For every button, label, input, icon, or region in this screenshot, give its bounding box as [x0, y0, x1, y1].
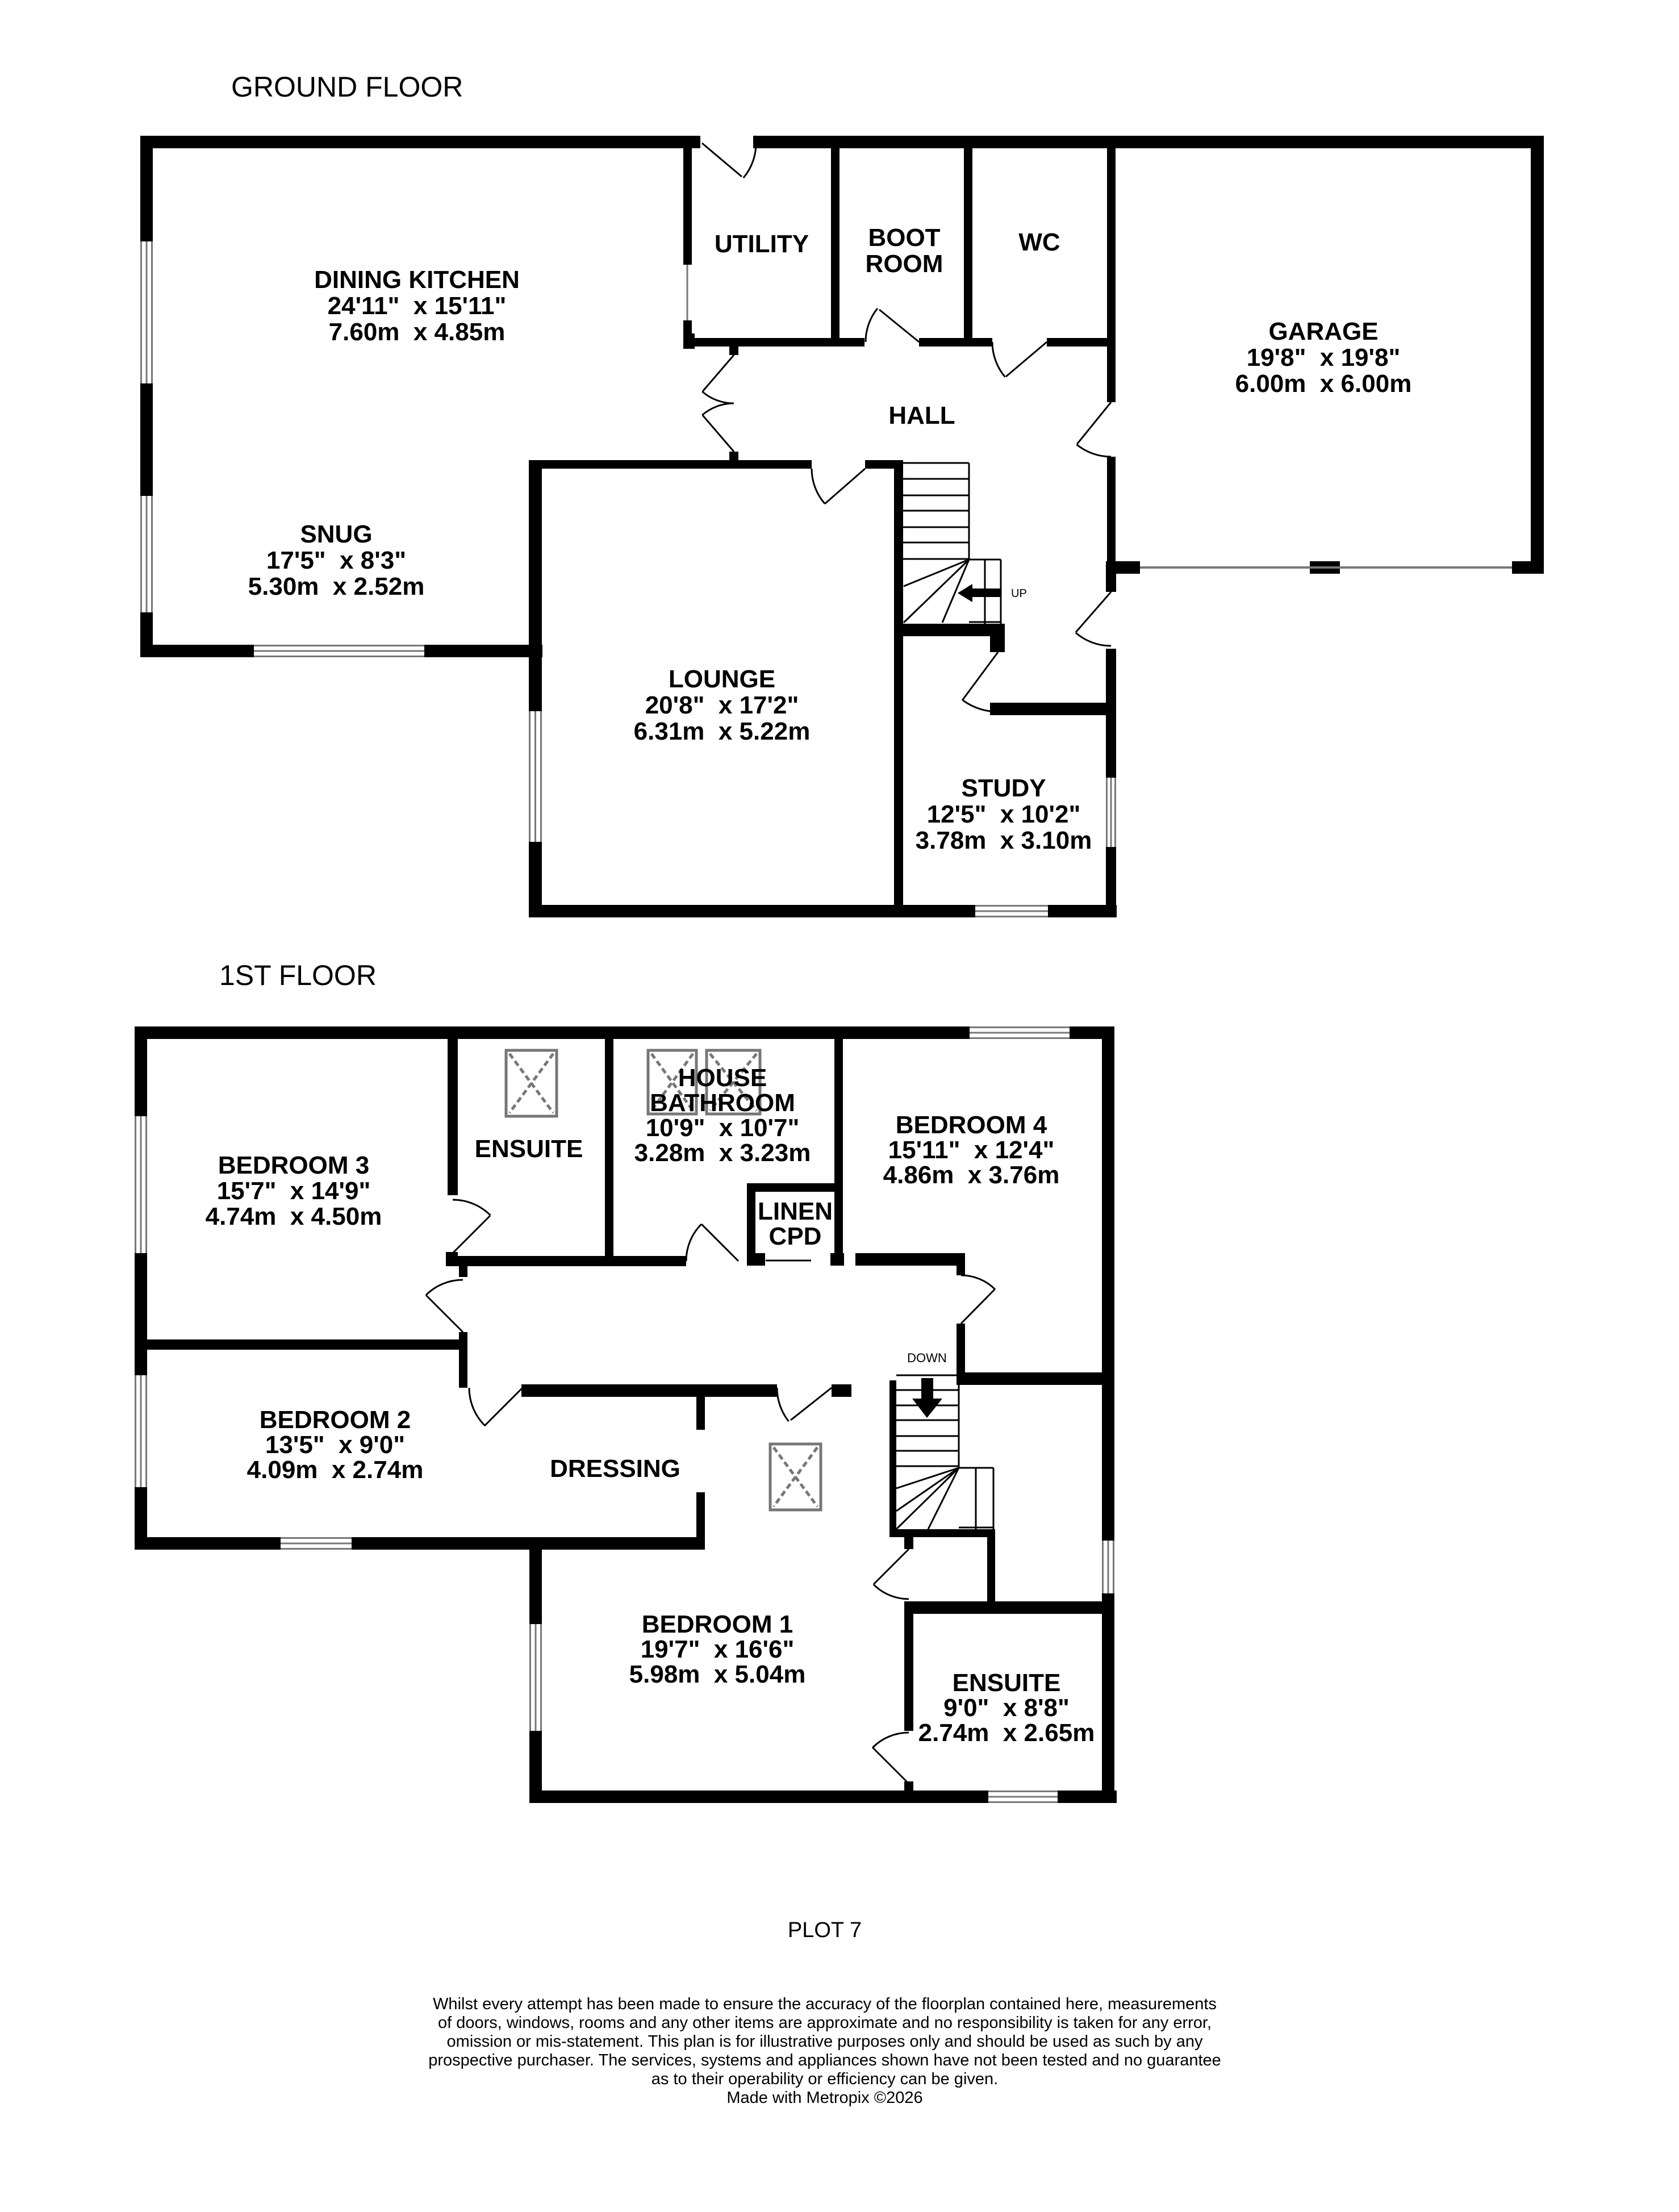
svg-text:of doors, windows, rooms and a: of doors, windows, rooms and any other i… [438, 2014, 1212, 2032]
svg-text:HOUSE: HOUSE [678, 1064, 767, 1092]
svg-text:ENSUITE: ENSUITE [953, 1669, 1061, 1697]
svg-text:24'11" x 15'11": 24'11" x 15'11" [328, 292, 507, 320]
svg-text:3.78m x 3.10m: 3.78m x 3.10m [916, 827, 1092, 854]
svg-text:LINEN: LINEN [758, 1197, 833, 1225]
svg-text:DOWN: DOWN [907, 1351, 947, 1365]
svg-text:9'0" x 8'8": 9'0" x 8'8" [943, 1694, 1070, 1722]
svg-text:BOOT: BOOT [868, 224, 940, 252]
svg-text:BEDROOM 4: BEDROOM 4 [896, 1111, 1047, 1139]
svg-text:5.98m x 5.04m: 5.98m x 5.04m [629, 1660, 806, 1688]
svg-text:7.60m x 4.85m: 7.60m x 4.85m [329, 318, 506, 346]
svg-text:4.74m x 4.50m: 4.74m x 4.50m [206, 1203, 382, 1230]
svg-text:12'5" x 10'2": 12'5" x 10'2" [927, 800, 1081, 828]
svg-text:ROOM: ROOM [866, 250, 943, 278]
svg-text:Made with Metropix ©2026: Made with Metropix ©2026 [726, 2089, 922, 2107]
svg-text:ENSUITE: ENSUITE [475, 1135, 583, 1163]
svg-text:15'7" x 14'9": 15'7" x 14'9" [217, 1177, 371, 1205]
svg-text:13'5" x 9'0": 13'5" x 9'0" [265, 1431, 405, 1459]
svg-text:BEDROOM 2: BEDROOM 2 [260, 1406, 411, 1434]
svg-text:HALL: HALL [888, 402, 955, 429]
svg-text:STUDY: STUDY [961, 774, 1046, 802]
svg-text:UP: UP [1011, 587, 1027, 600]
svg-text:5.30m x 2.52m: 5.30m x 2.52m [248, 573, 425, 600]
svg-text:6.31m x 5.22m: 6.31m x 5.22m [634, 717, 811, 745]
svg-text:PLOT 7: PLOT 7 [788, 1918, 862, 1942]
svg-text:4.86m x 3.76m: 4.86m x 3.76m [883, 1161, 1060, 1189]
svg-text:15'11" x 12'4": 15'11" x 12'4" [888, 1136, 1055, 1164]
svg-text:LOUNGE: LOUNGE [669, 665, 775, 693]
svg-text:prospective purchaser. The ser: prospective purchaser. The services, sys… [428, 2051, 1221, 2069]
svg-text:19'8" x 19'8": 19'8" x 19'8" [1247, 344, 1401, 372]
svg-text:19'7" x 16'6": 19'7" x 16'6" [641, 1635, 795, 1663]
svg-text:WC: WC [1018, 228, 1060, 256]
svg-text:CPD: CPD [769, 1222, 822, 1250]
svg-text:BATHROOM: BATHROOM [650, 1089, 795, 1117]
svg-text:omission or mis-statement. Thi: omission or mis-statement. This plan is … [447, 2032, 1203, 2051]
svg-text:Whilst every attempt has been: Whilst every attempt has been made to en… [433, 1995, 1217, 2013]
svg-text:17'5" x 8'3": 17'5" x 8'3" [266, 546, 406, 574]
svg-text:2.74m x 2.65m: 2.74m x 2.65m [918, 1719, 1095, 1747]
svg-text:DINING KITCHEN: DINING KITCHEN [314, 266, 520, 294]
svg-text:20'8" x 17'2": 20'8" x 17'2" [645, 691, 799, 719]
svg-text:1ST FLOOR: 1ST FLOOR [219, 959, 377, 991]
svg-text:GARAGE: GARAGE [1268, 318, 1378, 345]
svg-text:GROUND FLOOR: GROUND FLOOR [231, 71, 463, 103]
svg-text:as to their operability or eff: as to their operability or efficiency ca… [651, 2070, 998, 2088]
svg-text:10'9" x 10'7": 10'9" x 10'7" [646, 1114, 800, 1142]
svg-text:3.28m x 3.23m: 3.28m x 3.23m [634, 1139, 811, 1167]
svg-text:SNUG: SNUG [300, 520, 372, 548]
svg-text:DRESSING: DRESSING [550, 1455, 680, 1483]
svg-text:6.00m x 6.00m: 6.00m x 6.00m [1235, 370, 1412, 398]
svg-text:4.09m x 2.74m: 4.09m x 2.74m [247, 1456, 424, 1484]
svg-text:BEDROOM 1: BEDROOM 1 [642, 1610, 793, 1638]
svg-text:UTILITY: UTILITY [715, 230, 809, 258]
svg-text:BEDROOM 3: BEDROOM 3 [218, 1151, 369, 1179]
